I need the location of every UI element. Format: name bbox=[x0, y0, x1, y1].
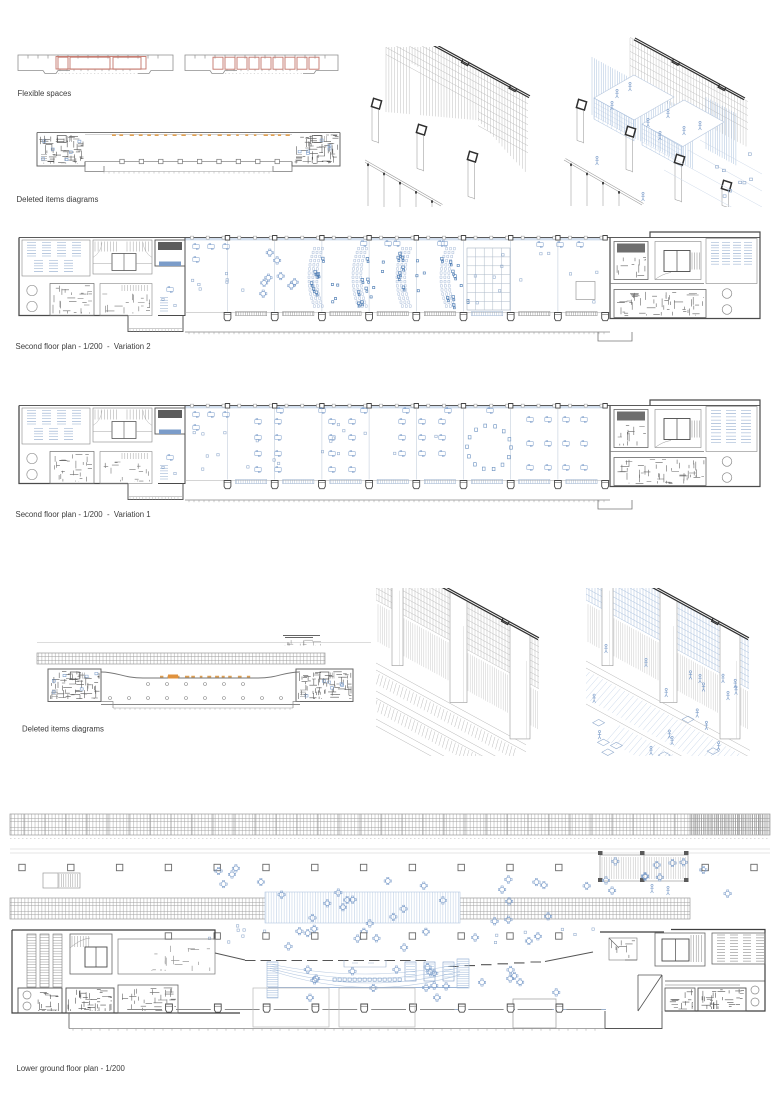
svg-text:Lower ground floor plan - 1/20: Lower ground floor plan - 1/200 bbox=[17, 1064, 126, 1073]
svg-text:Deleted items diagrams: Deleted items diagrams bbox=[22, 724, 104, 733]
svg-text:Deleted items diagrams: Deleted items diagrams bbox=[17, 195, 99, 204]
svg-text:Second floor plan - 1/200 -: Second floor plan - 1/200 - Variation 1 bbox=[16, 510, 151, 519]
svg-text:Second floor plan - 1/200 -: Second floor plan - 1/200 - Variation 2 bbox=[16, 342, 151, 351]
svg-text:Flexible spaces: Flexible spaces bbox=[18, 89, 72, 98]
